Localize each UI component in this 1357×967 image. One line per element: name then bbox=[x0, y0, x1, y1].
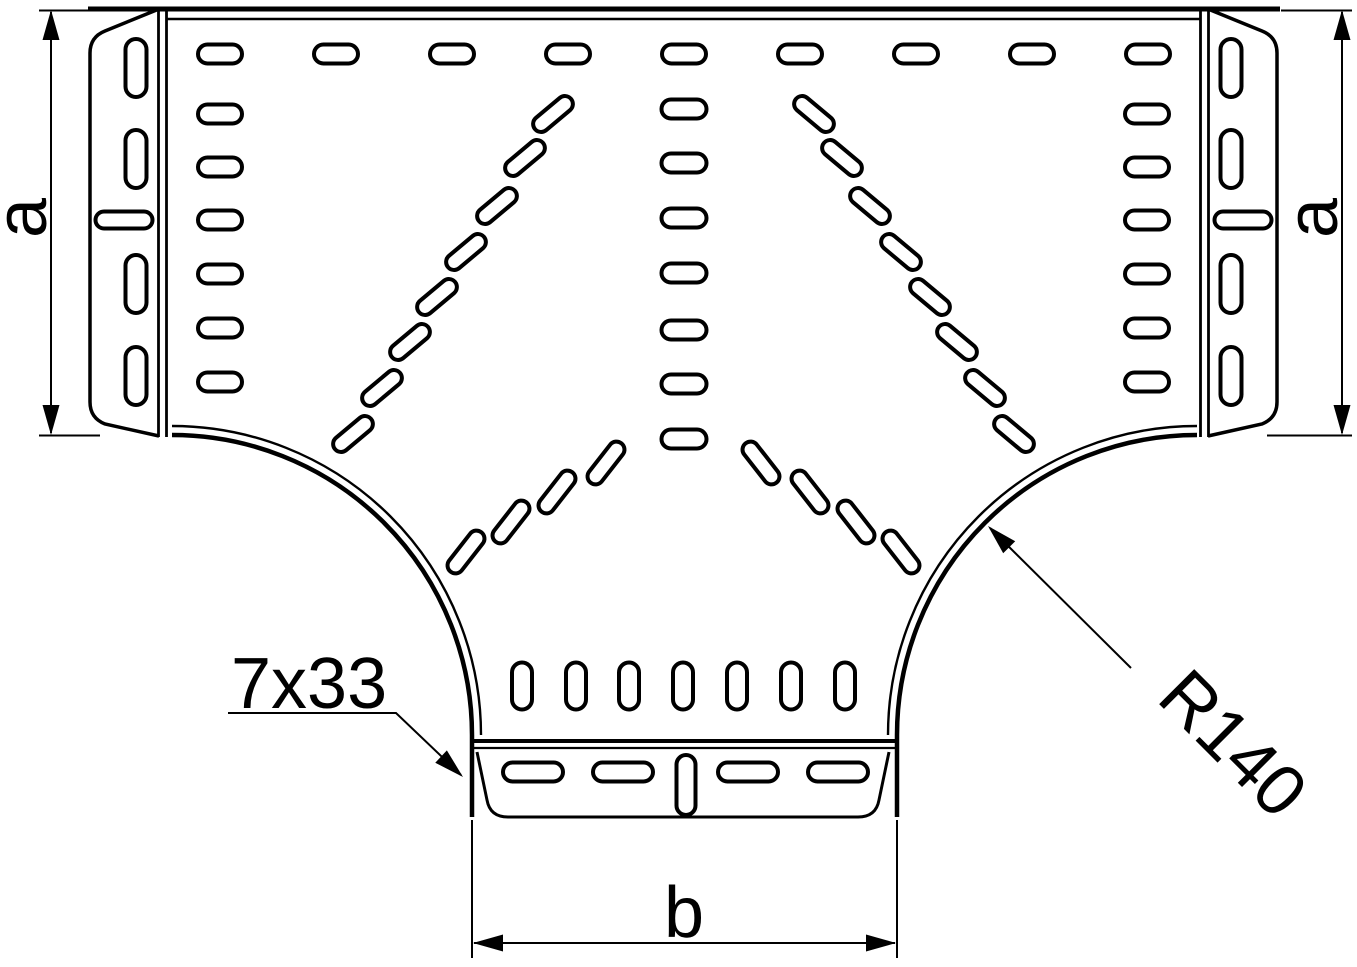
arrowhead-down bbox=[1334, 405, 1351, 435]
leader-7x33: 7x33 bbox=[228, 644, 469, 783]
slot-hole bbox=[530, 93, 576, 135]
slot-hole bbox=[512, 663, 532, 710]
technical-drawing-page: a a b 7x33 R140 bbox=[0, 0, 1357, 967]
leader-r140: R140 bbox=[982, 520, 1322, 833]
slot-hole bbox=[1125, 105, 1169, 124]
slot-hole bbox=[662, 430, 707, 449]
arrowhead-right bbox=[866, 935, 896, 952]
slot-hole bbox=[1221, 130, 1242, 188]
slot-hole bbox=[894, 45, 938, 64]
slot-hole bbox=[808, 763, 868, 782]
slot-hole bbox=[1126, 45, 1170, 64]
slot-hole bbox=[1010, 45, 1054, 64]
slot-hole bbox=[1221, 39, 1242, 97]
slot-hole bbox=[1215, 212, 1272, 229]
slot-hole bbox=[677, 755, 696, 815]
slot-hole bbox=[662, 375, 707, 394]
slot-hole bbox=[1125, 373, 1169, 392]
slot-hole bbox=[847, 185, 893, 227]
slot-hole bbox=[788, 467, 831, 516]
slot-hole bbox=[1125, 265, 1169, 284]
slot-hole bbox=[819, 137, 865, 179]
slot-hole bbox=[198, 373, 242, 392]
slot-hole bbox=[126, 130, 147, 188]
slot-hole bbox=[1125, 211, 1169, 230]
tee-piece-drawing: a a b 7x33 R140 bbox=[0, 0, 1357, 967]
slot-hole bbox=[879, 527, 922, 576]
slot-hole bbox=[739, 438, 782, 487]
dim-a-right-label: a bbox=[1273, 197, 1353, 238]
slot-note-label: 7x33 bbox=[231, 644, 387, 724]
slot-hole bbox=[834, 497, 877, 546]
dim-a-left-label: a bbox=[0, 197, 62, 238]
slot-hole bbox=[502, 137, 548, 179]
slot-hole bbox=[387, 321, 433, 363]
slot-hole bbox=[198, 265, 242, 284]
slot-hole bbox=[566, 663, 586, 710]
slot-hole bbox=[126, 39, 147, 97]
slot-hole bbox=[991, 413, 1037, 455]
slot-hole bbox=[126, 255, 147, 313]
slot-hole bbox=[198, 45, 242, 64]
arrowhead-up bbox=[43, 10, 60, 40]
slot-hole bbox=[718, 763, 778, 782]
slot-hole bbox=[934, 321, 980, 363]
slot-hole bbox=[593, 763, 653, 782]
slot-hole bbox=[778, 45, 822, 64]
slot-hole bbox=[584, 438, 627, 487]
dimension-a-left: a bbox=[0, 10, 100, 436]
slot-hole bbox=[1221, 255, 1242, 313]
slot-hole bbox=[1221, 347, 1242, 405]
slot-hole bbox=[835, 663, 855, 710]
slot-hole bbox=[443, 231, 489, 273]
slot-hole bbox=[791, 93, 837, 135]
slot-hole bbox=[1125, 158, 1169, 177]
slot-hole bbox=[1125, 319, 1169, 338]
slot-hole bbox=[662, 154, 707, 173]
arrowhead-down bbox=[43, 405, 60, 435]
slot-hole bbox=[96, 212, 153, 229]
slot-hole bbox=[198, 319, 242, 338]
slot-hole bbox=[503, 763, 563, 782]
slot-hole bbox=[662, 209, 707, 228]
slot-hole bbox=[414, 276, 460, 318]
leader-line-r140 bbox=[990, 528, 1131, 668]
slot-hole bbox=[907, 276, 953, 318]
slot-hole bbox=[198, 105, 242, 124]
dimension-a-right: a bbox=[1267, 10, 1353, 436]
dimension-b: b bbox=[472, 820, 897, 958]
radius-note-label: R140 bbox=[1144, 655, 1322, 833]
arrowhead-up bbox=[1334, 10, 1351, 40]
slot-hole bbox=[330, 413, 376, 455]
slot-hole bbox=[673, 663, 693, 710]
slot-hole bbox=[546, 45, 590, 64]
slot-hole bbox=[781, 663, 801, 710]
arrowhead-left bbox=[473, 935, 503, 952]
slot-hole bbox=[314, 45, 358, 64]
slot-hole bbox=[474, 185, 520, 227]
slot-hole bbox=[198, 158, 242, 177]
slot-hole bbox=[535, 467, 578, 516]
slot-hole bbox=[489, 497, 532, 546]
slot-hole bbox=[198, 211, 242, 230]
dim-b-label: b bbox=[664, 873, 704, 953]
slot-hole bbox=[727, 663, 747, 710]
slot-hole bbox=[359, 367, 405, 409]
slot-hole bbox=[444, 527, 487, 576]
slot-hole bbox=[662, 321, 707, 340]
slot-hole bbox=[126, 347, 147, 405]
slot-hole bbox=[662, 264, 707, 283]
slot-hole bbox=[430, 45, 474, 64]
slot-hole bbox=[962, 367, 1008, 409]
slot-hole bbox=[662, 100, 707, 119]
slot-hole bbox=[619, 663, 639, 710]
slot-hole bbox=[662, 45, 706, 64]
slot-hole bbox=[878, 231, 924, 273]
